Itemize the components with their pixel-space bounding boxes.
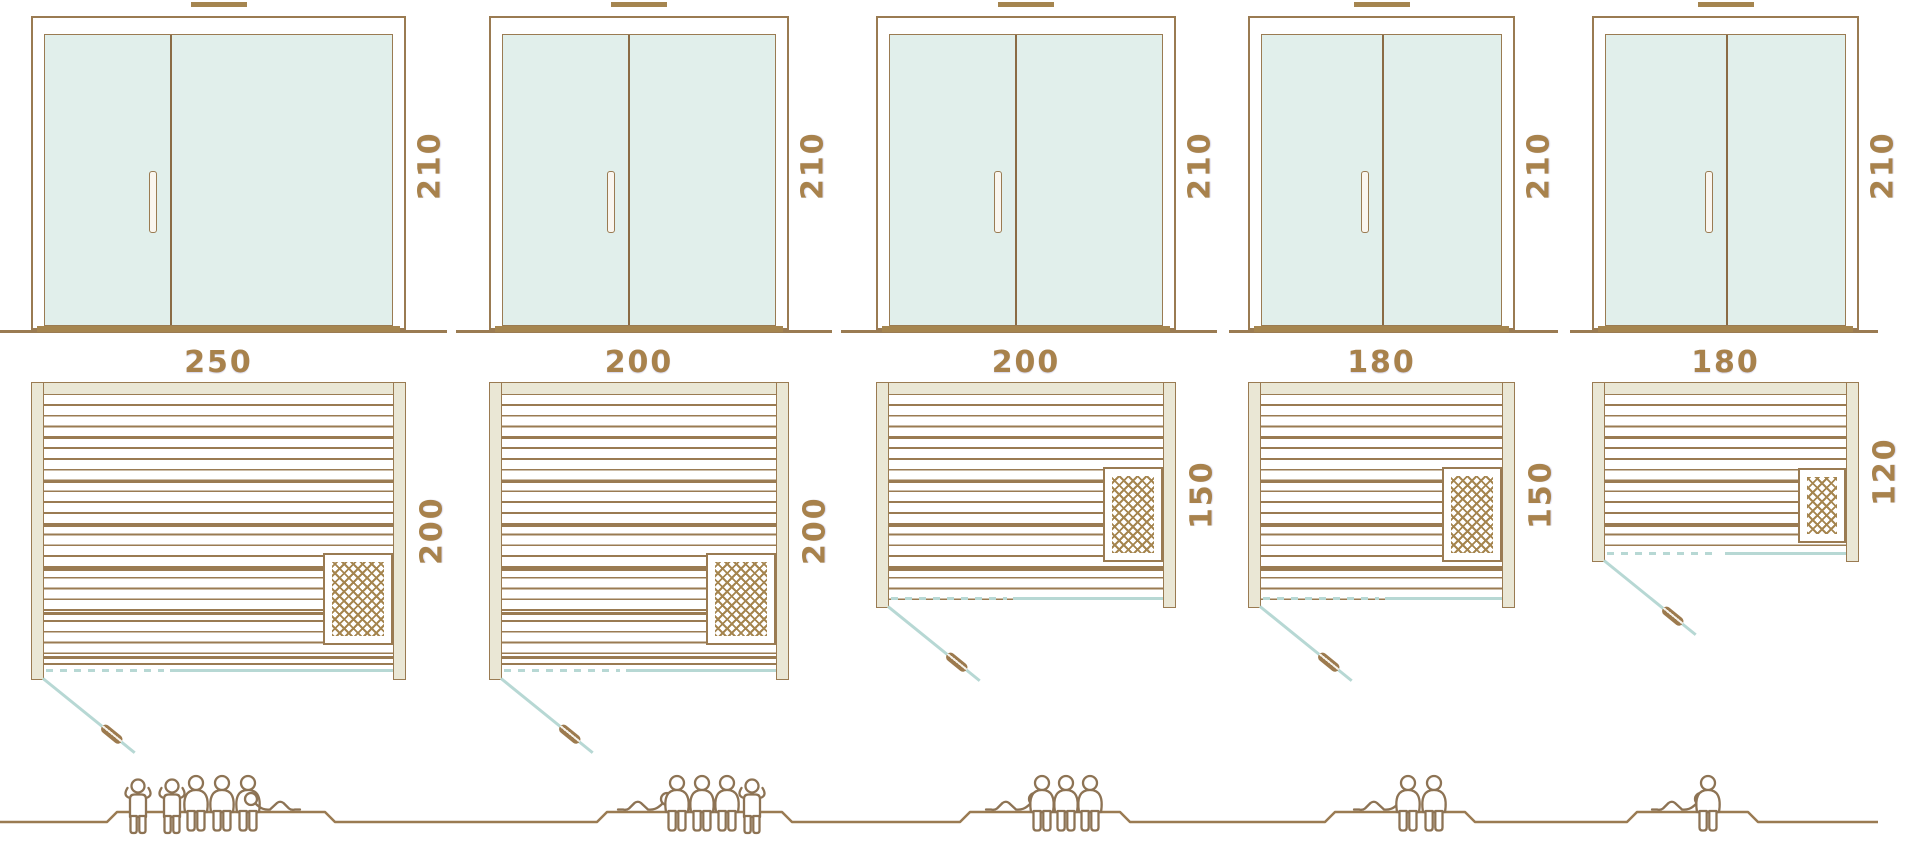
person-lying	[986, 793, 1041, 810]
plan-width-dim: 250	[31, 345, 406, 380]
door-handle-icon	[1660, 605, 1685, 628]
heater-stove	[706, 553, 776, 645]
person-seated	[1696, 776, 1719, 831]
person-lying	[1652, 793, 1707, 810]
heater-stove	[1798, 468, 1846, 543]
person-seated	[1054, 776, 1077, 831]
door-handle-icon	[99, 723, 124, 746]
dim-label: 210	[1522, 132, 1557, 201]
dim-label: 210	[1866, 132, 1901, 201]
person-seated	[690, 776, 713, 831]
door-handle-icon	[557, 723, 582, 746]
roof-vent-icon	[998, 2, 1054, 7]
dim-label: 200	[415, 497, 450, 566]
dim-label: 250	[184, 345, 253, 380]
person-lying	[1354, 793, 1409, 810]
plan-depth-dim: 150	[1184, 449, 1220, 541]
door-handle-icon	[944, 651, 969, 674]
door-threshold	[495, 326, 783, 332]
person-seated	[715, 776, 738, 831]
door-pane-divider	[1382, 35, 1384, 325]
door-threshold	[37, 326, 400, 332]
floor-plan-3: 200 150	[876, 382, 1176, 608]
door-elevation-2: 210	[489, 16, 789, 330]
person-lying	[618, 793, 673, 810]
door-threshold	[882, 326, 1170, 332]
dim-label: 120	[1868, 438, 1903, 507]
roof-vent-icon	[611, 2, 667, 7]
heater-grate-icon	[1112, 476, 1154, 553]
person-seated	[1396, 776, 1419, 831]
door-pane-divider	[628, 35, 630, 325]
front-glass-wall	[626, 669, 776, 672]
door-height-dim: 210	[1865, 120, 1901, 212]
plan-width-dim: 200	[876, 345, 1176, 380]
open-door-leaf	[887, 605, 981, 682]
wall-right	[393, 382, 406, 680]
plan-width-dim: 180	[1248, 345, 1515, 380]
plan-depth-dim: 120	[1867, 426, 1903, 518]
person-seated	[236, 776, 259, 831]
person-standing	[159, 780, 184, 834]
door-threshold	[1598, 326, 1853, 332]
wall-right	[1163, 382, 1176, 608]
door-handle-icon	[1361, 171, 1369, 233]
front-glass-wall	[1725, 552, 1846, 555]
person-standing	[125, 780, 150, 834]
roof-vent-icon	[1354, 2, 1410, 7]
open-door-leaf	[42, 677, 136, 754]
door-opening-dashed	[504, 669, 620, 672]
door-handle-icon	[994, 171, 1002, 233]
glass-door-panes	[889, 34, 1163, 326]
heater-grate-icon	[1807, 477, 1837, 534]
door-opening-dashed	[46, 669, 164, 672]
dim-label: 150	[1185, 461, 1220, 530]
dim-label: 200	[798, 497, 833, 566]
sauna-size-diagram: 210 250 200 210 200 200	[0, 0, 1920, 856]
front-glass-wall	[1013, 597, 1163, 600]
open-door-leaf	[1259, 605, 1353, 682]
door-handle-icon	[1705, 171, 1713, 233]
floor-plan-4: 180 150	[1248, 382, 1515, 608]
dim-label: 210	[413, 132, 448, 201]
open-door-leaf	[1603, 559, 1697, 636]
floor-plan-2: 200 200	[489, 382, 789, 680]
door-height-dim: 210	[1182, 120, 1218, 212]
glass-door-panes	[1261, 34, 1502, 326]
door-opening-dashed	[1263, 597, 1379, 600]
wall-right	[776, 382, 789, 680]
door-handle-icon	[1316, 651, 1341, 674]
door-height-dim: 210	[795, 120, 831, 212]
person-seated	[1078, 776, 1101, 831]
ground-platform-line	[0, 812, 1878, 822]
door-pane-divider	[1726, 35, 1728, 325]
dim-label: 200	[605, 345, 674, 380]
door-elevation-5: 210	[1592, 16, 1859, 330]
door-elevation-3: 210	[876, 16, 1176, 330]
door-pane-divider	[170, 35, 172, 325]
dim-label: 210	[796, 132, 831, 201]
floor-plan-1: 250 200	[31, 382, 406, 680]
glass-door-panes	[502, 34, 776, 326]
door-threshold	[1254, 326, 1509, 332]
wall-right	[1502, 382, 1515, 608]
glass-door-panes	[1605, 34, 1846, 326]
plan-depth-dim: 200	[414, 485, 450, 577]
wall-right	[1846, 382, 1859, 562]
door-height-dim: 210	[1521, 120, 1557, 212]
heater-grate-icon	[715, 562, 767, 636]
plan-depth-dim: 200	[797, 485, 833, 577]
heater-grate-icon	[332, 562, 384, 636]
dim-label: 180	[1691, 345, 1760, 380]
dim-label: 200	[992, 345, 1061, 380]
door-handle-icon	[607, 171, 615, 233]
plan-width-dim: 180	[1592, 345, 1859, 380]
dim-label: 150	[1524, 461, 1559, 530]
door-opening-dashed	[891, 597, 1007, 600]
door-height-dim: 210	[412, 120, 448, 212]
roof-vent-icon	[1698, 2, 1754, 7]
person-seated	[665, 776, 688, 831]
heater-grate-icon	[1451, 476, 1493, 553]
person-seated	[184, 776, 207, 831]
glass-door-panes	[44, 34, 393, 326]
front-glass-wall	[170, 669, 393, 672]
person-seated	[1422, 776, 1445, 831]
door-elevation-4: 210	[1248, 16, 1515, 330]
person-seated	[210, 776, 233, 831]
open-door-leaf	[500, 677, 594, 754]
dim-label: 180	[1347, 345, 1416, 380]
door-pane-divider	[1015, 35, 1017, 325]
plan-width-dim: 200	[489, 345, 789, 380]
door-opening-dashed	[1607, 552, 1719, 555]
person-seated	[1030, 776, 1053, 831]
person-lying	[245, 793, 300, 810]
floor-plan-5: 180 120	[1592, 382, 1859, 562]
plan-depth-dim: 150	[1523, 449, 1559, 541]
dim-label: 210	[1183, 132, 1218, 201]
heater-stove	[1103, 467, 1163, 562]
door-elevation-1: 210	[31, 16, 406, 330]
roof-vent-icon	[191, 2, 247, 7]
heater-stove	[1442, 467, 1502, 562]
heater-stove	[323, 553, 393, 645]
front-glass-wall	[1385, 597, 1502, 600]
door-handle-icon	[149, 171, 157, 233]
person-standing	[739, 780, 764, 834]
